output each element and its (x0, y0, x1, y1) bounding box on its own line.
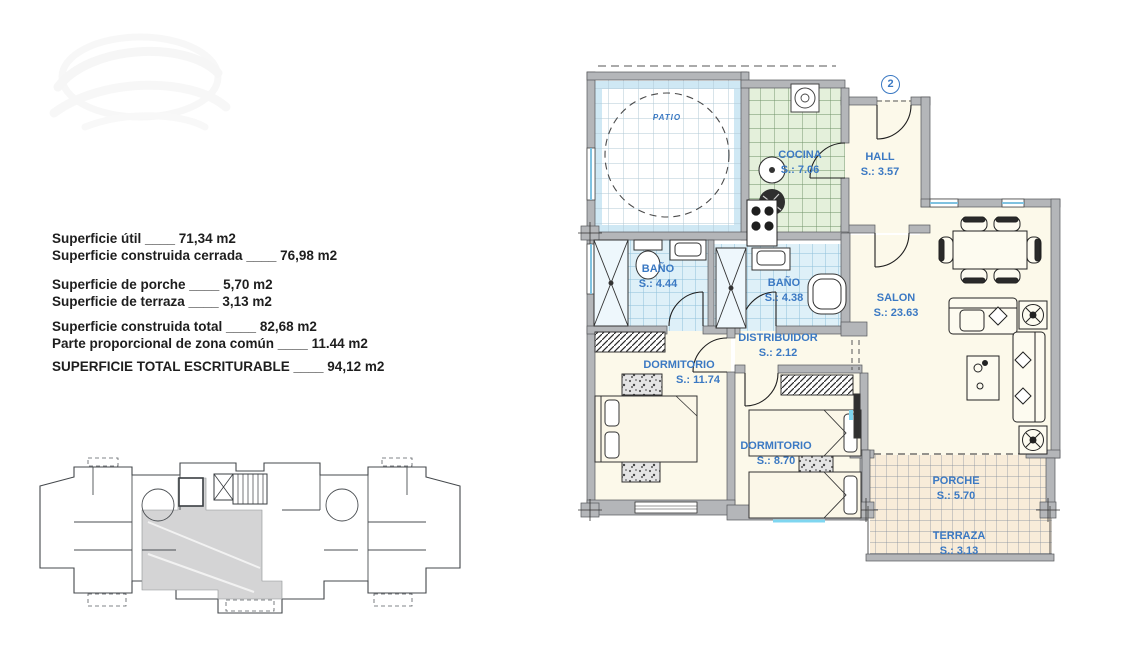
apartment-plan-drawing (578, 58, 1080, 574)
apartment-plan: PATIO COCINA S.: 7.06 HALL S.: 3.57 BAÑO… (578, 58, 1080, 574)
unit-number-badge: 2 (881, 75, 900, 94)
summary-line-util: Superficie útil ____ 71,34 m2 (52, 230, 384, 247)
building-key-plan (30, 450, 470, 642)
watermark-logo (30, 15, 250, 150)
summary-line-construida-cerrada: Superficie construida cerrada ____ 76,98… (52, 247, 384, 264)
floor-plan-sheet: Superficie útil ____ 71,34 m2 Superficie… (0, 0, 1127, 657)
summary-line-terraza: Superficie de terraza ____ 3,13 m2 (52, 293, 384, 310)
summary-line-porche: Superficie de porche ____ 5,70 m2 (52, 276, 384, 293)
surface-summary: Superficie útil ____ 71,34 m2 Superficie… (52, 230, 384, 387)
summary-line-zona-comun: Parte proporcional de zona común ____ 11… (52, 335, 384, 352)
summary-line-construida-total: Superficie construida total ____ 82,68 m… (52, 318, 384, 335)
summary-line-total-escriturable: SUPERFICIE TOTAL ESCRITURABLE ____ 94,12… (52, 358, 384, 375)
